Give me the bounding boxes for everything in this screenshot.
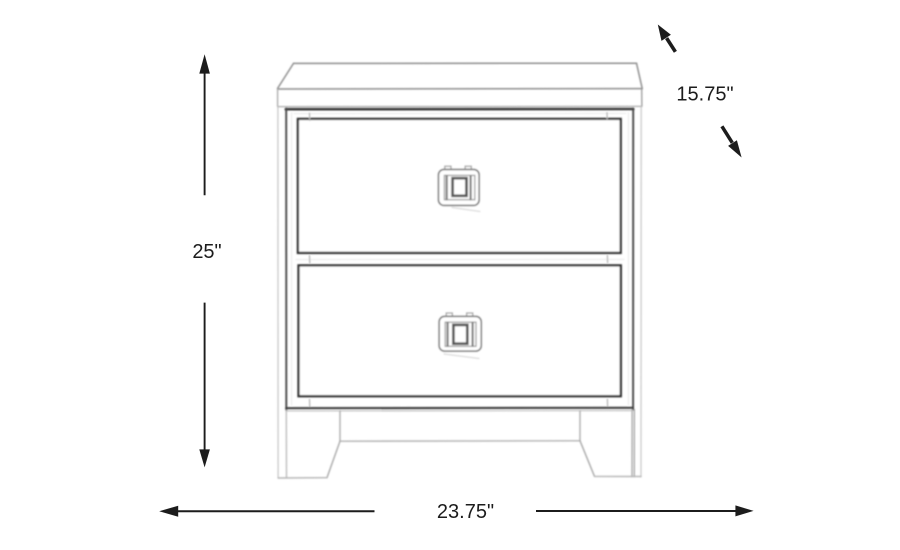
svg-text:15.75": 15.75" (676, 84, 733, 106)
svg-text:25": 25" (192, 241, 221, 263)
svg-text:23.75": 23.75" (437, 501, 494, 523)
